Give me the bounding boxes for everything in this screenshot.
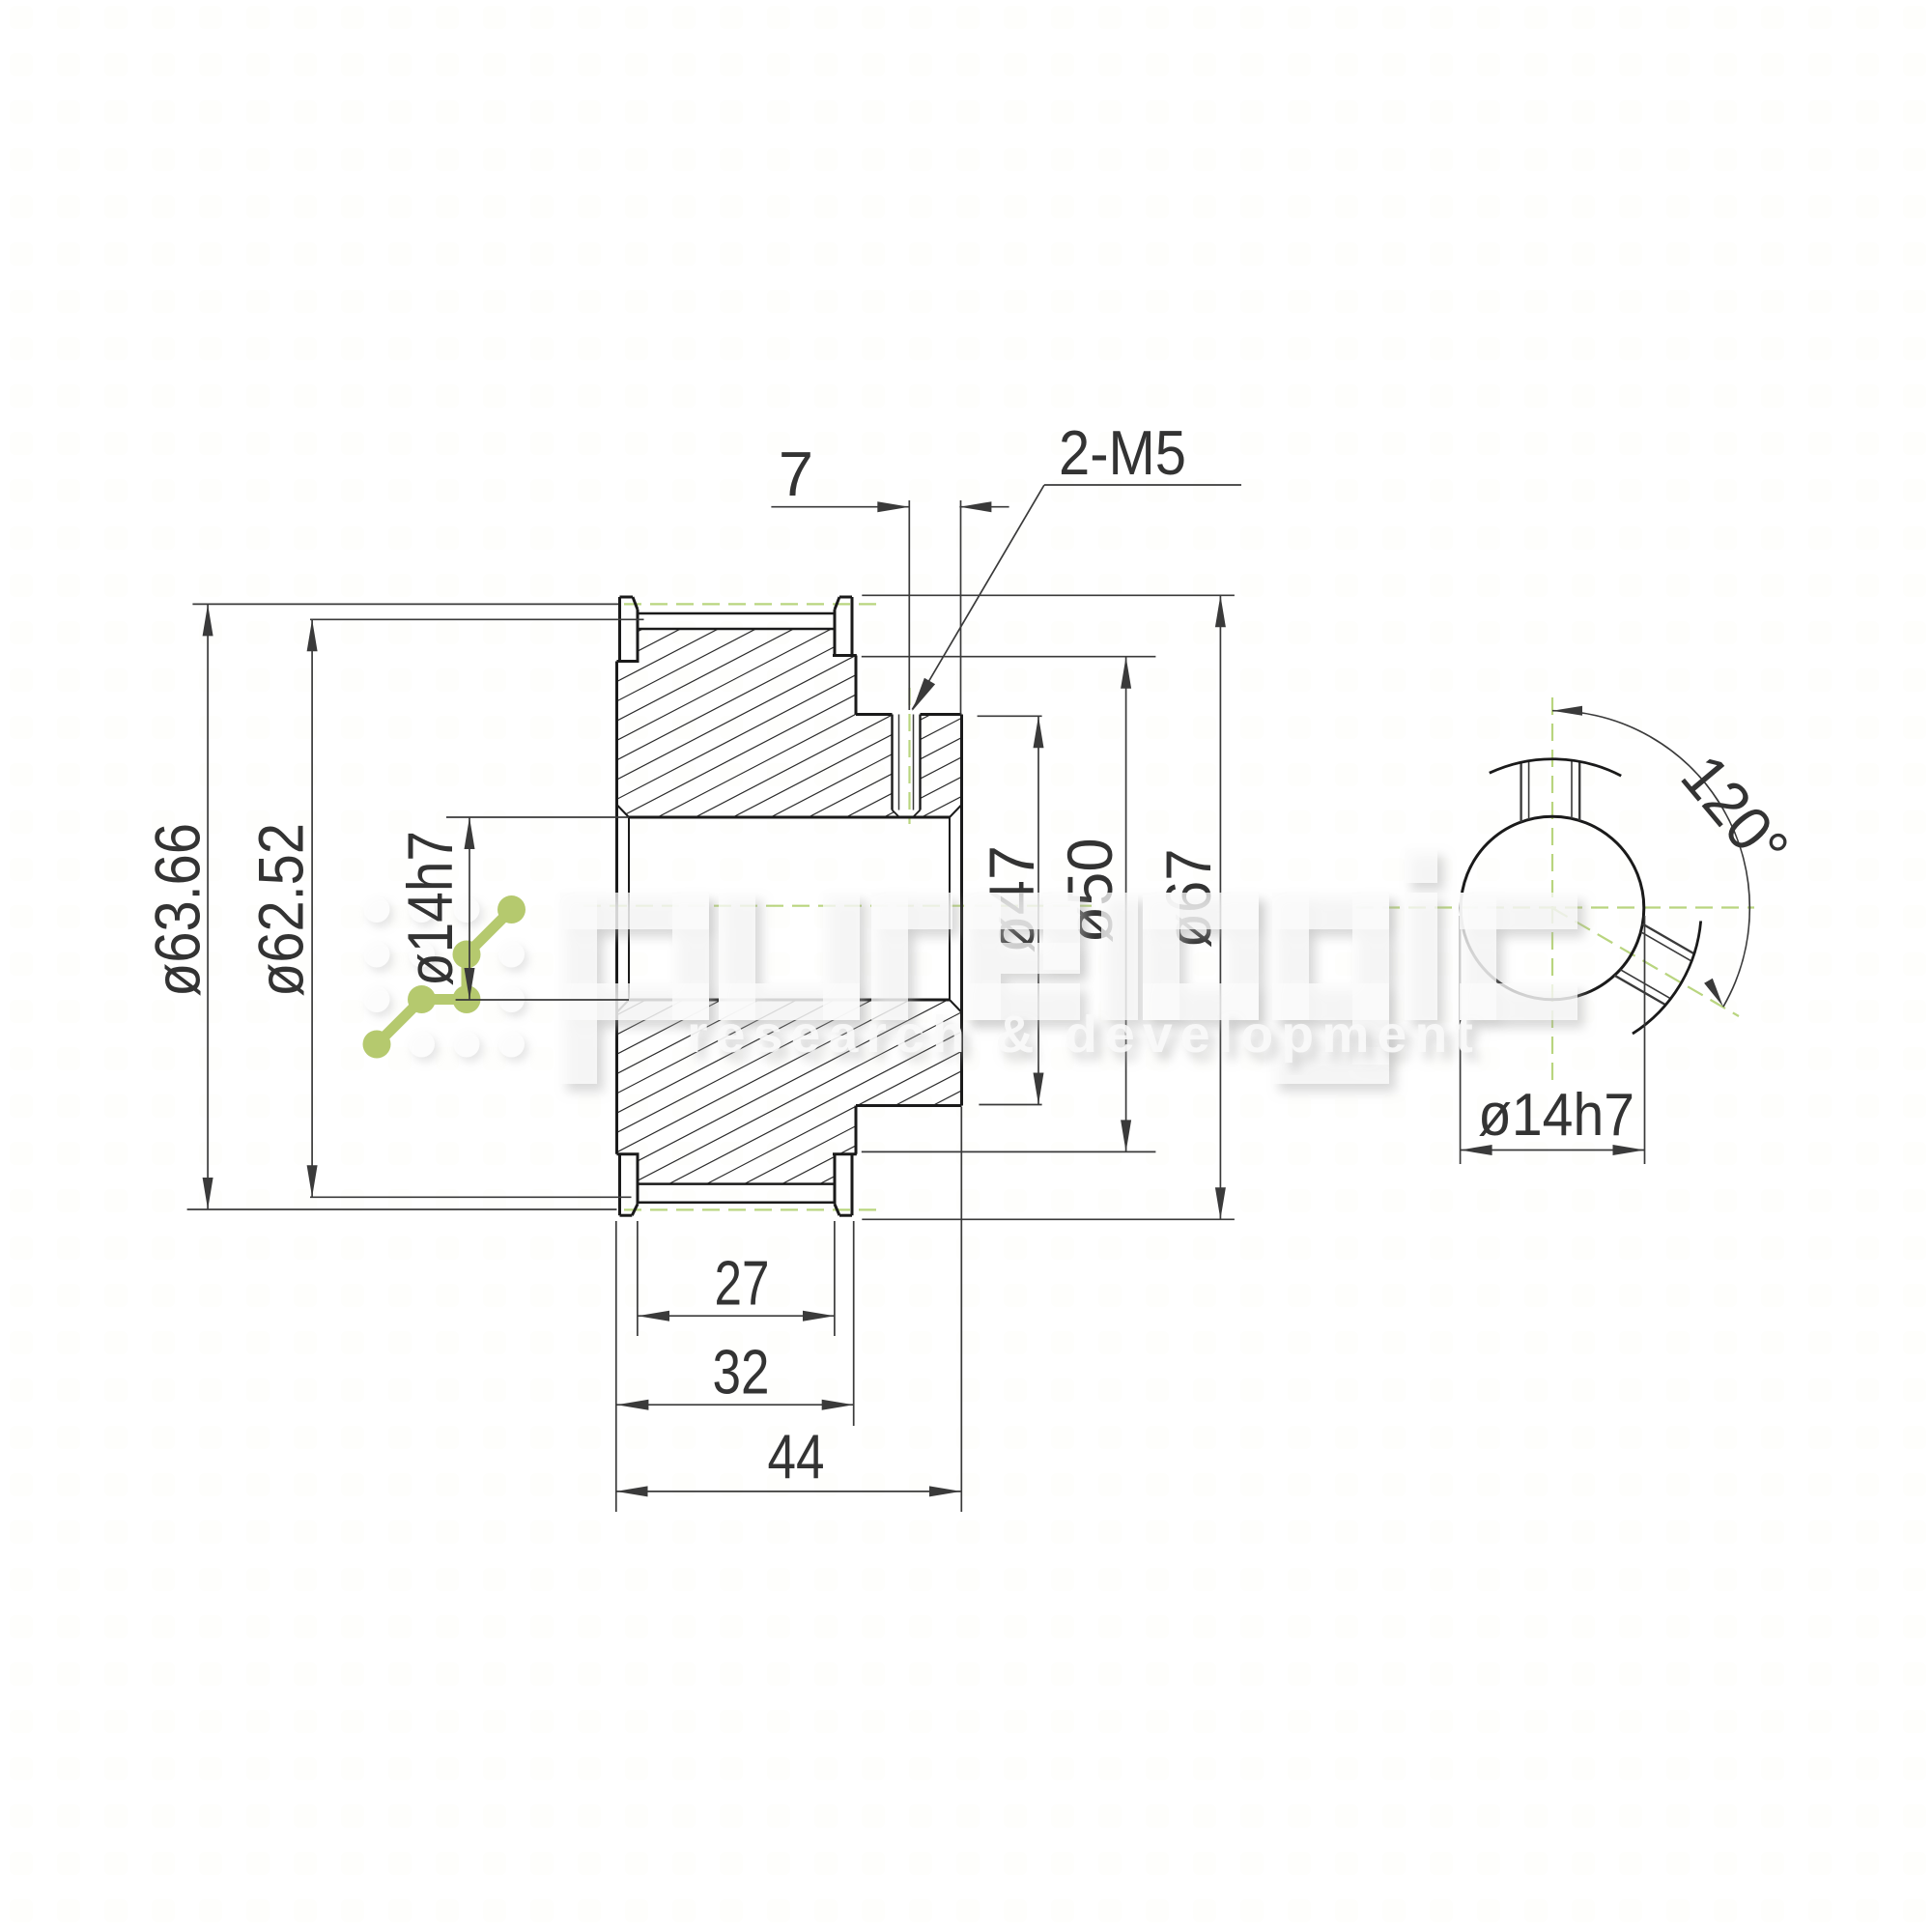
svg-text:44: 44 [768, 1421, 825, 1492]
svg-text:32: 32 [713, 1337, 770, 1407]
svg-text:research & development: research & development [687, 1006, 1481, 1064]
svg-text:ø62.52: ø62.52 [245, 823, 317, 997]
svg-text:ø63.66: ø63.66 [142, 823, 213, 997]
svg-text:7: 7 [779, 439, 813, 509]
svg-text:2-M5: 2-M5 [1059, 417, 1186, 488]
svg-text:27: 27 [715, 1248, 770, 1319]
svg-text:ø14h7: ø14h7 [394, 831, 466, 986]
svg-text:ø14h7: ø14h7 [1478, 1082, 1634, 1149]
